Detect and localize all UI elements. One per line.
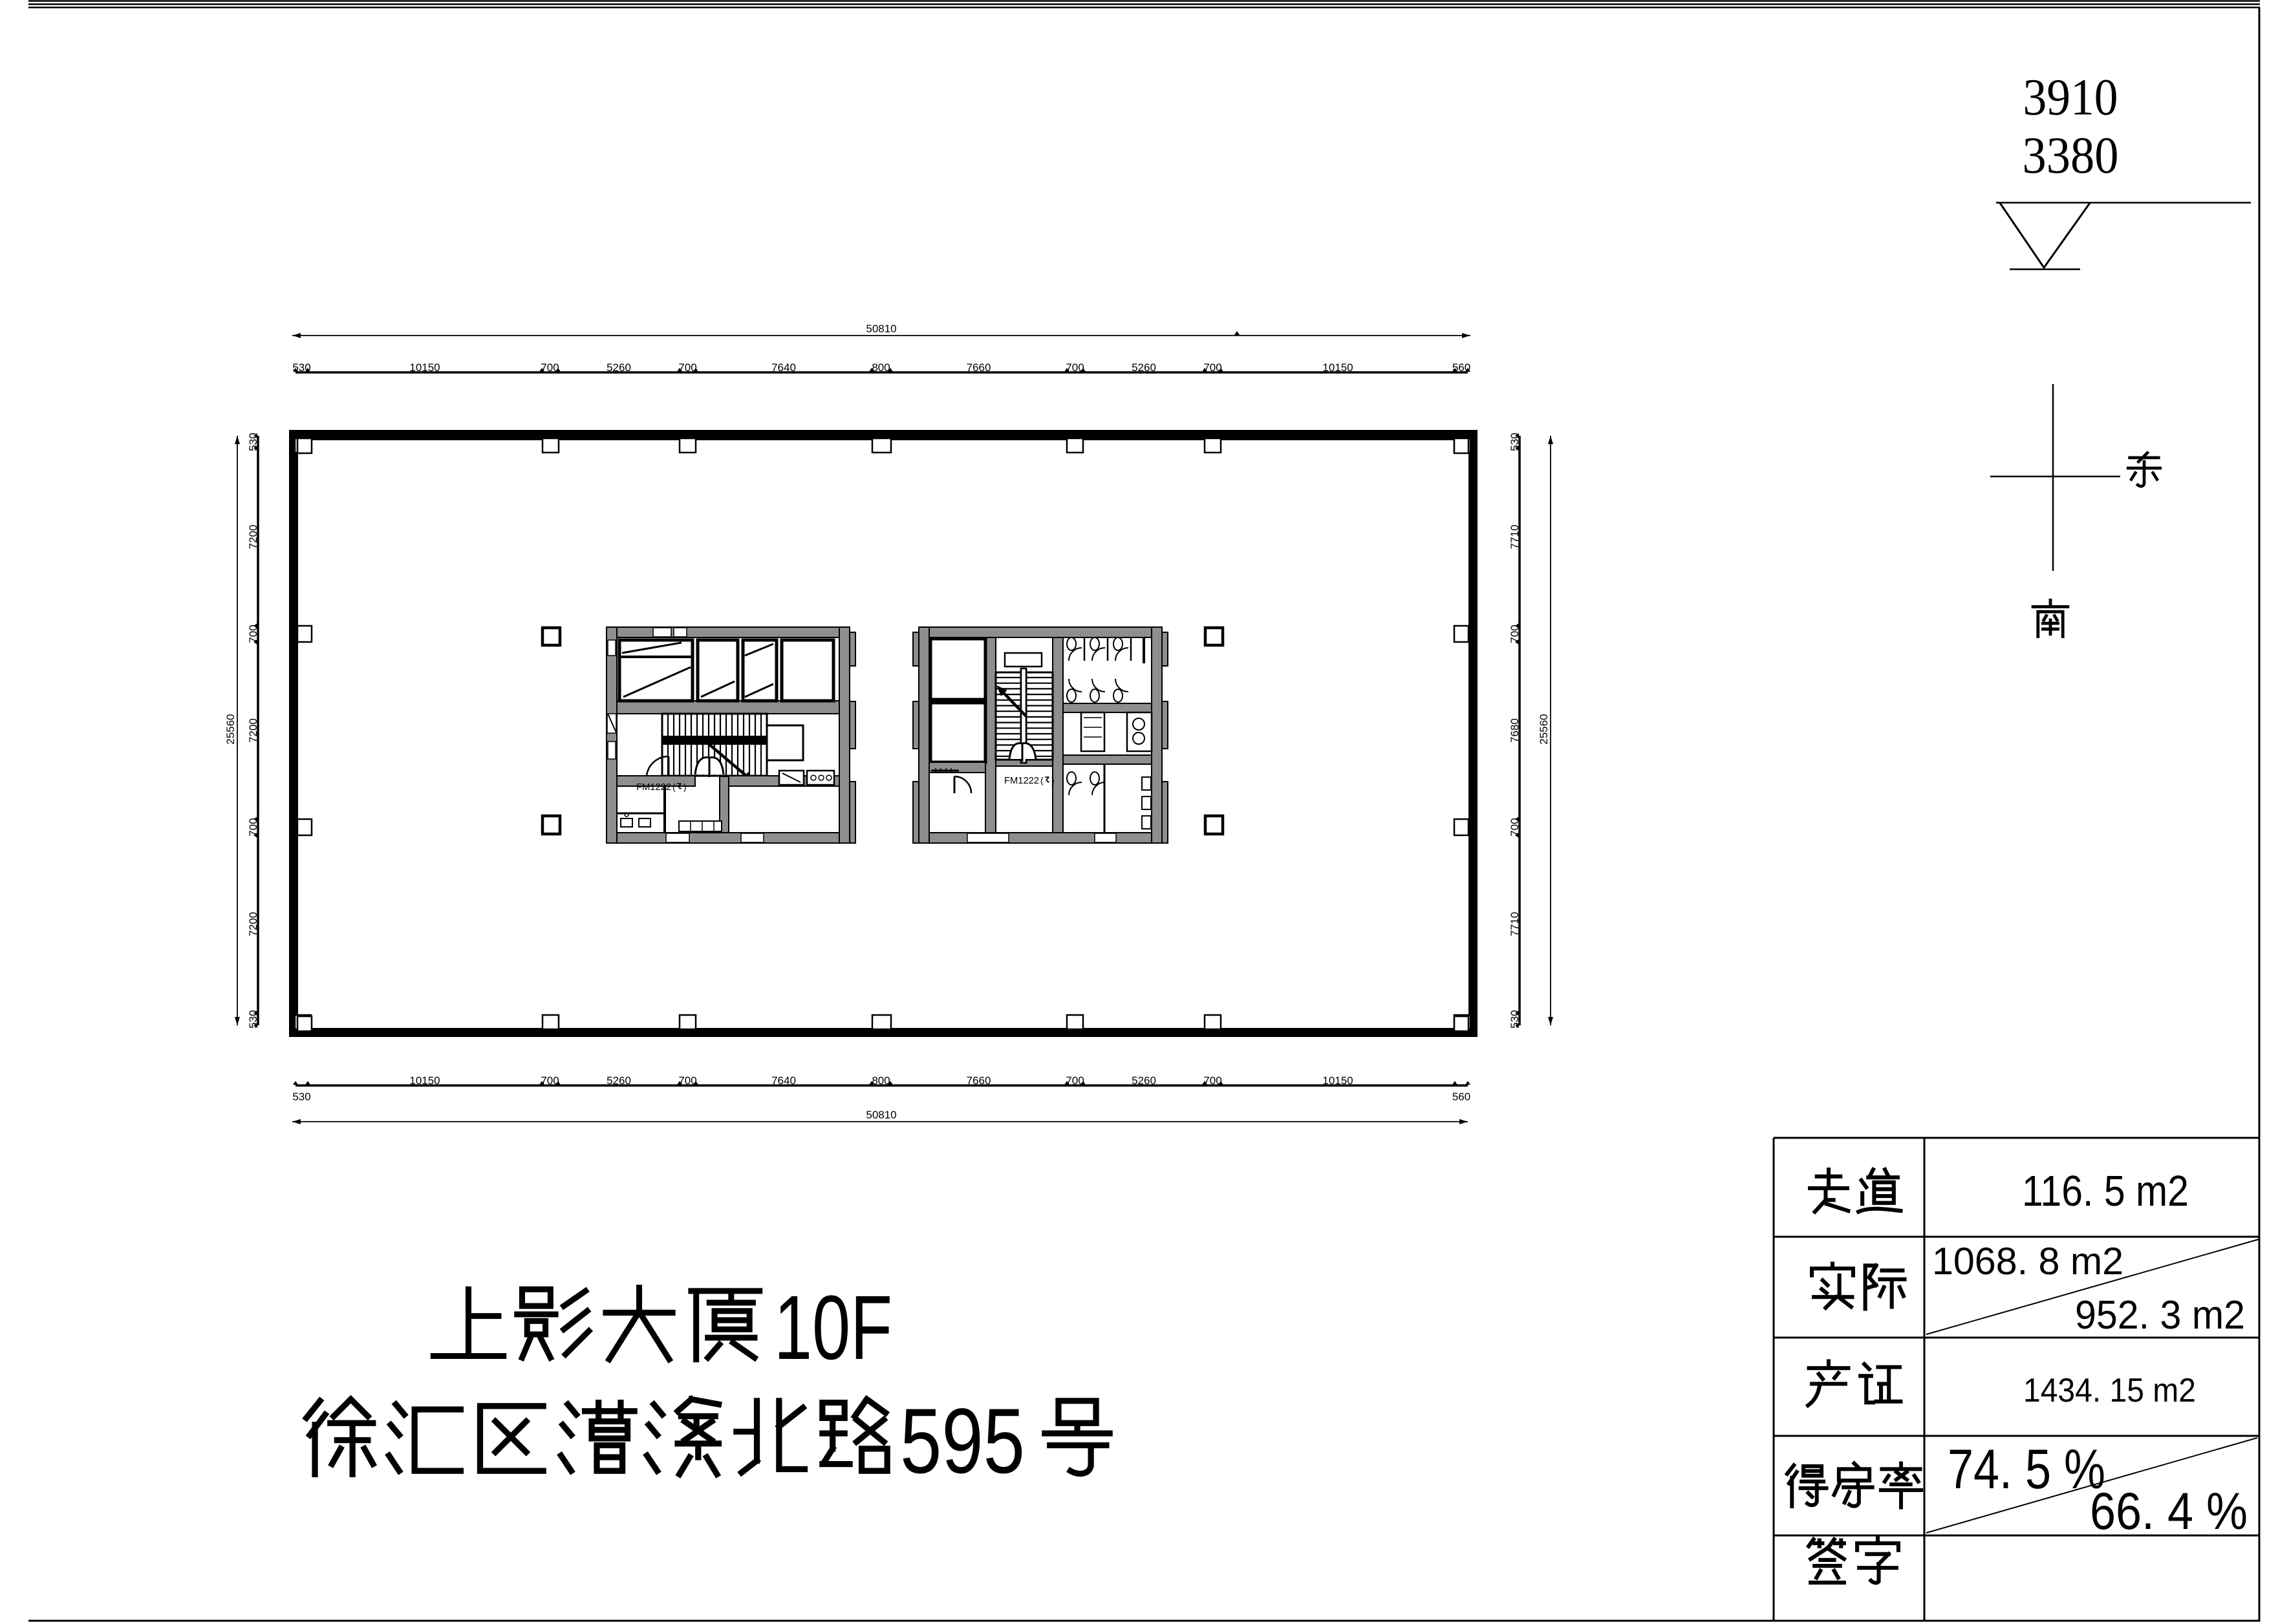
svg-text:530: 530	[292, 1091, 310, 1103]
svg-text:5260: 5260	[607, 1074, 631, 1087]
svg-text:FM1222: FM1222	[636, 782, 671, 793]
svg-text:530: 530	[1509, 433, 1521, 451]
svg-text:50810: 50810	[866, 1109, 896, 1121]
svg-text:800: 800	[872, 361, 890, 374]
svg-text:530: 530	[247, 433, 259, 451]
svg-text:530: 530	[292, 361, 310, 374]
svg-text:10F: 10F	[774, 1276, 892, 1378]
svg-text:7200: 7200	[247, 525, 259, 550]
svg-text:): )	[1051, 775, 1055, 785]
svg-text:700: 700	[247, 625, 259, 643]
svg-text:116. 5 m2: 116. 5 m2	[2022, 1167, 2189, 1215]
svg-text:10150: 10150	[1322, 1074, 1353, 1087]
svg-text:560: 560	[1452, 361, 1470, 374]
svg-text:560: 560	[1452, 1091, 1470, 1103]
svg-text:10150: 10150	[1322, 361, 1353, 374]
svg-text:5260: 5260	[1132, 361, 1156, 374]
svg-text:700: 700	[678, 361, 696, 374]
svg-text:50810: 50810	[866, 323, 896, 335]
svg-text:): )	[683, 782, 687, 792]
svg-text:530: 530	[247, 1010, 259, 1028]
svg-text:800: 800	[872, 1074, 890, 1087]
svg-text:7710: 7710	[1509, 525, 1521, 550]
svg-text:700: 700	[1203, 361, 1221, 374]
svg-text:7710: 7710	[1509, 912, 1521, 937]
svg-text:1434. 15 m2: 1434. 15 m2	[2023, 1372, 2196, 1409]
svg-text:10150: 10150	[409, 361, 440, 374]
svg-text:7200: 7200	[247, 912, 259, 937]
svg-text:700: 700	[678, 1074, 696, 1087]
svg-text:700: 700	[1203, 1074, 1221, 1087]
svg-text:66. 4 %: 66. 4 %	[2090, 1482, 2248, 1541]
svg-text:700: 700	[541, 361, 559, 374]
svg-text:5260: 5260	[1132, 1074, 1156, 1087]
svg-text:(: (	[1040, 775, 1044, 785]
svg-text:7660: 7660	[967, 1074, 991, 1087]
svg-text:7680: 7680	[1509, 718, 1521, 743]
svg-text:10150: 10150	[409, 1074, 440, 1087]
svg-text:700: 700	[1066, 1074, 1084, 1087]
svg-text:700: 700	[541, 1074, 559, 1087]
svg-text:952. 3 m2: 952. 3 m2	[2075, 1293, 2245, 1338]
svg-text:25560: 25560	[1538, 714, 1550, 744]
svg-text:700: 700	[1066, 361, 1084, 374]
svg-text:700: 700	[1509, 818, 1521, 836]
svg-text:1068. 8 m2: 1068. 8 m2	[1932, 1240, 2123, 1283]
svg-text:7640: 7640	[771, 1074, 796, 1087]
svg-text:3910: 3910	[2023, 69, 2118, 126]
svg-text:7660: 7660	[967, 361, 991, 374]
svg-text:7200: 7200	[247, 718, 259, 743]
svg-text:25560: 25560	[224, 714, 237, 744]
svg-text:530: 530	[1509, 1010, 1521, 1028]
svg-text:5260: 5260	[607, 361, 631, 374]
svg-text:(: (	[672, 782, 676, 792]
svg-text:FM1222: FM1222	[1004, 775, 1039, 786]
svg-text:7640: 7640	[771, 361, 796, 374]
svg-text:700: 700	[247, 818, 259, 836]
svg-text:700: 700	[1509, 625, 1521, 643]
svg-text:74. 5 %: 74. 5 %	[1948, 1438, 2105, 1501]
svg-text:595: 595	[900, 1390, 1025, 1493]
svg-text:3380: 3380	[2023, 127, 2119, 184]
